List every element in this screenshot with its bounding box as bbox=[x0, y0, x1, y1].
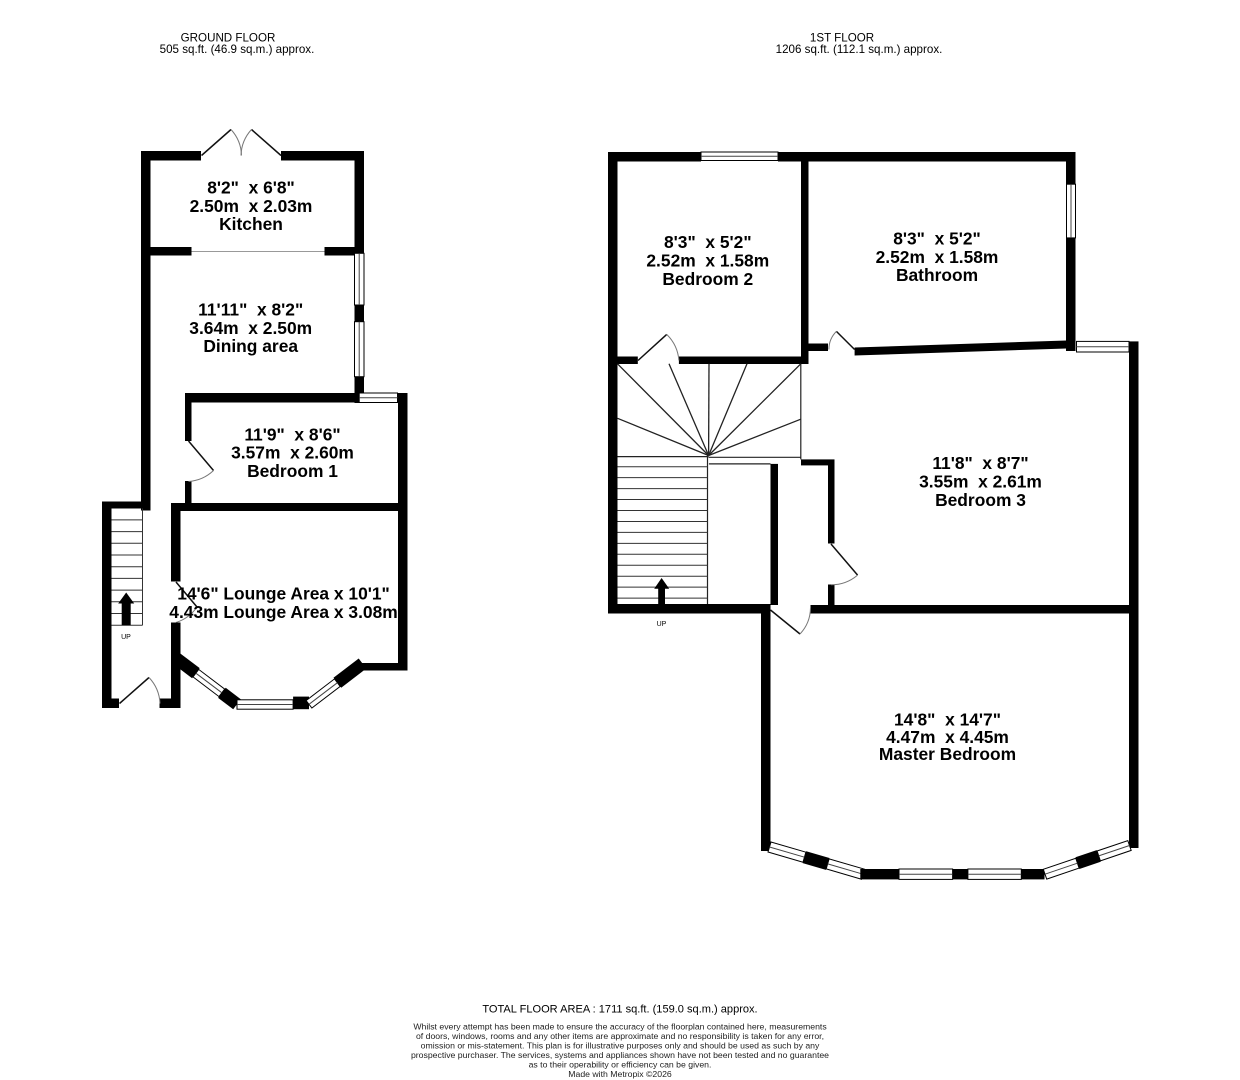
svg-text:3.64m x 2.50m: 3.64m x 2.50m bbox=[189, 318, 312, 338]
svg-text:505 sq.ft. (46.9 sq.m.) approx: 505 sq.ft. (46.9 sq.m.) approx. bbox=[160, 43, 315, 56]
svg-text:omission or mis-statement. Thi: omission or mis-statement. This plan is … bbox=[421, 1040, 820, 1050]
svg-text:UP: UP bbox=[657, 621, 667, 628]
svg-text:Dining area: Dining area bbox=[203, 336, 298, 356]
svg-text:3.55m x 2.61m: 3.55m x 2.61m bbox=[919, 472, 1042, 492]
svg-text:TOTAL FLOOR AREA : 1711 sq.ft.: TOTAL FLOOR AREA : 1711 sq.ft. (159.0 sq… bbox=[482, 1004, 757, 1016]
svg-text:Bedroom 2: Bedroom 2 bbox=[662, 269, 753, 289]
svg-text:8'3" x 5'2": 8'3" x 5'2" bbox=[893, 229, 981, 249]
svg-text:11'8" x 8'7": 11'8" x 8'7" bbox=[932, 453, 1028, 473]
svg-text:of doors, windows, rooms and a: of doors, windows, rooms and any other i… bbox=[416, 1031, 824, 1041]
svg-text:prospective purchaser. The ser: prospective purchaser. The services, sys… bbox=[411, 1050, 829, 1060]
svg-text:2.52m x 1.58m: 2.52m x 1.58m bbox=[646, 251, 769, 271]
svg-text:4.43m Lounge Area x 3.08m: 4.43m Lounge Area x 3.08m bbox=[169, 602, 397, 622]
svg-text:Kitchen: Kitchen bbox=[219, 214, 283, 234]
svg-text:2.52m x 1.58m: 2.52m x 1.58m bbox=[876, 247, 999, 267]
svg-text:UP: UP bbox=[121, 634, 131, 641]
svg-text:Bedroom 3: Bedroom 3 bbox=[935, 490, 1026, 510]
svg-text:8'3" x 5'2": 8'3" x 5'2" bbox=[664, 232, 752, 252]
svg-text:1206 sq.ft. (112.1 sq.m.) appr: 1206 sq.ft. (112.1 sq.m.) approx. bbox=[776, 43, 943, 56]
svg-text:Bedroom 1: Bedroom 1 bbox=[247, 461, 338, 481]
svg-text:Made with Metropix ©2026: Made with Metropix ©2026 bbox=[568, 1069, 672, 1079]
svg-text:Master Bedroom: Master Bedroom bbox=[879, 744, 1016, 764]
svg-text:11'11" x 8'2": 11'11" x 8'2" bbox=[198, 300, 303, 320]
svg-text:as to their operability or eff: as to their operability or efficiency ca… bbox=[529, 1059, 712, 1069]
svg-text:8'2" x 6'8": 8'2" x 6'8" bbox=[207, 178, 295, 198]
svg-text:3.57m x 2.60m: 3.57m x 2.60m bbox=[231, 443, 354, 463]
svg-text:14'6" Lounge Area x 10'1": 14'6" Lounge Area x 10'1" bbox=[177, 584, 390, 604]
svg-text:Whilst every attempt has been: Whilst every attempt has been made to en… bbox=[413, 1021, 827, 1031]
svg-text:Bathroom: Bathroom bbox=[896, 265, 978, 285]
svg-text:11'9" x 8'6": 11'9" x 8'6" bbox=[244, 424, 340, 444]
svg-text:2.50m x 2.03m: 2.50m x 2.03m bbox=[190, 196, 313, 216]
